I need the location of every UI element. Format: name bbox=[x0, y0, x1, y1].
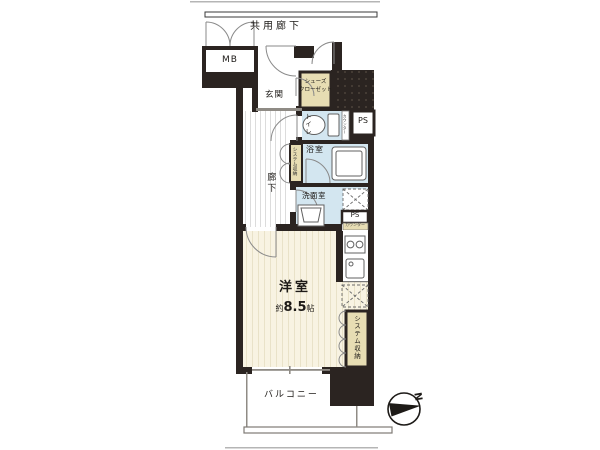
common-corridor-line bbox=[205, 12, 377, 17]
balcony-railing bbox=[244, 427, 392, 433]
entrance-label: 玄関 bbox=[265, 91, 284, 101]
common-corridor-label: 共用廊下 bbox=[250, 21, 302, 33]
void-block bbox=[331, 70, 374, 111]
toilet-counter-label: カウンター bbox=[342, 114, 347, 138]
bathroom-label: 浴室 bbox=[306, 145, 324, 154]
mb-door-arc-left bbox=[206, 22, 230, 46]
hall-storage-label: システム収納 bbox=[291, 147, 297, 181]
balcony-pillar bbox=[330, 367, 374, 406]
kitchen-bottom-line bbox=[343, 281, 368, 282]
balcony-window-tick bbox=[289, 366, 291, 374]
ps-upper-label: PS bbox=[352, 116, 374, 125]
toilet-label: トイレ bbox=[303, 113, 310, 139]
page-edge-line-top bbox=[190, 1, 380, 3]
washroom-label: 洗面室 bbox=[302, 192, 326, 201]
shoe-closet-label: シューズ クローゼット bbox=[297, 78, 334, 95]
kitchen-counter-label: カウンター bbox=[342, 223, 368, 228]
balcony-left-line bbox=[246, 372, 248, 428]
ps-lower-label: PS bbox=[342, 211, 368, 219]
mb-double-doors bbox=[206, 22, 254, 46]
entrance-step-line bbox=[256, 108, 302, 111]
hallway-floor bbox=[243, 111, 290, 227]
upper-right-door-arc bbox=[312, 42, 334, 64]
main-room-size-label: 約8.5帖 bbox=[262, 297, 328, 316]
floor-plan-drawing bbox=[0, 0, 600, 450]
washroom-top-wall bbox=[296, 183, 368, 187]
room-doorjamb-right bbox=[276, 224, 290, 231]
upper-right-door bbox=[312, 42, 334, 64]
meter-box-label: MB bbox=[206, 55, 254, 65]
washbasin-icon bbox=[298, 205, 324, 226]
kitchen-left-wall bbox=[336, 231, 343, 282]
balcony-label: バルコニー bbox=[264, 390, 319, 400]
main-room-size-unit: 帖 bbox=[307, 304, 315, 313]
bathtub-outer bbox=[332, 147, 366, 180]
balcony-right-line bbox=[356, 406, 358, 427]
main-room-label: 洋室 bbox=[265, 281, 325, 296]
top-wall-stub-a bbox=[294, 46, 314, 58]
bathtub-icon bbox=[332, 147, 366, 180]
washer-space bbox=[343, 189, 368, 210]
page-edge-line-bottom bbox=[225, 447, 378, 449]
toilet-tank bbox=[328, 114, 339, 136]
floor-plan-page: 共用廊下 MB 玄関 シューズ クローゼット トイレ カウンター PS 浴室 シ… bbox=[0, 0, 600, 450]
hallway-label: 廊下 bbox=[265, 172, 275, 194]
room-bottom-wall-left bbox=[236, 367, 252, 374]
balcony-window-line bbox=[252, 369, 330, 371]
room-doorjamb-left bbox=[236, 224, 246, 231]
main-room-size-value: 8.5 bbox=[283, 300, 306, 315]
washroom-doorjamb-top bbox=[290, 182, 296, 190]
room-storage-label: システム収納 bbox=[352, 315, 359, 365]
